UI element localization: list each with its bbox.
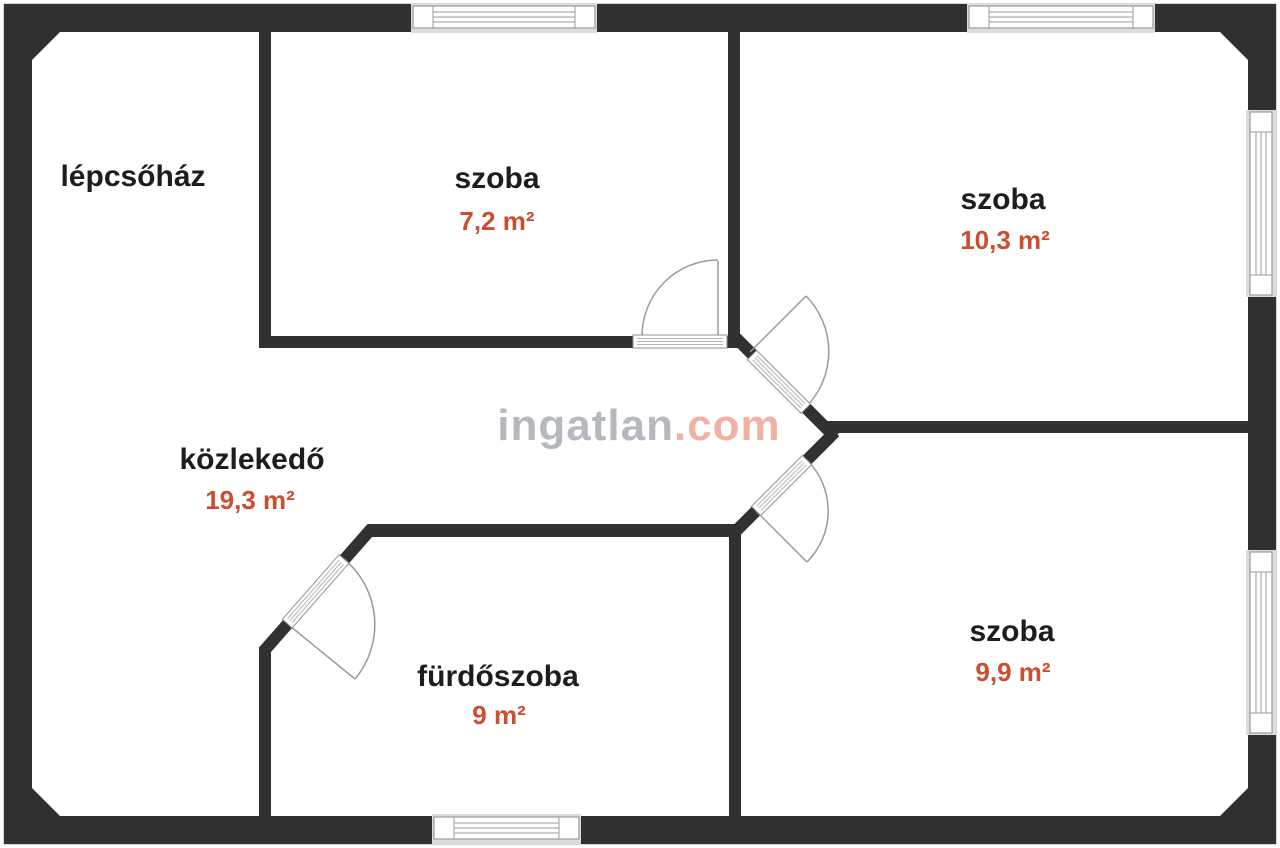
room-lepcsohaz: lépcsőház xyxy=(60,160,205,193)
room-szoba-3: szoba 9,9 m² xyxy=(969,615,1054,687)
floor-plan: ingatlan.com lépcsőház szoba 7,2 m² szob… xyxy=(0,0,1280,848)
corner-chamfer-bottom-right xyxy=(1220,788,1248,816)
room-name-szoba-3: szoba xyxy=(969,615,1054,648)
window-right-2 xyxy=(1246,550,1276,735)
watermark-ingatlan: ingatlan xyxy=(497,401,674,450)
room-furdoszoba: fürdőszoba 9 m² xyxy=(417,660,579,730)
door-furdoszoba xyxy=(282,555,374,679)
window-bottom xyxy=(432,814,581,844)
room-area-szoba-3: 9,9 m² xyxy=(975,657,1050,687)
room-name-kozlekedo: közlekedő xyxy=(179,443,324,476)
wall-szoba1-bottom xyxy=(259,336,633,348)
room-area-kozlekedo: 19,3 m² xyxy=(205,485,295,515)
room-name-szoba-1: szoba xyxy=(454,162,539,195)
wall-furdoszoba-left xyxy=(259,648,271,816)
corner-chamfer-top-right xyxy=(1220,32,1248,60)
door-szoba1 xyxy=(633,260,727,348)
room-area-szoba-1: 7,2 m² xyxy=(459,206,534,236)
window-top-1 xyxy=(411,3,597,33)
corner-chamfer-top-left xyxy=(32,32,60,60)
room-name-lepcsohaz: lépcsőház xyxy=(60,160,205,193)
watermark-com: .com xyxy=(674,401,781,450)
room-szoba-1: szoba 7,2 m² xyxy=(454,162,539,236)
wall-left xyxy=(4,4,32,844)
wall-szoba2-szoba3 xyxy=(824,421,1248,433)
doors xyxy=(282,260,828,679)
watermark-logo: ingatlan.com xyxy=(497,401,780,450)
wall-bottom xyxy=(4,816,1276,844)
room-name-furdoszoba: fürdőszoba xyxy=(417,660,579,693)
door-szoba2 xyxy=(747,296,828,413)
wall-furdoszoba-szoba3 xyxy=(729,524,741,816)
room-szoba-2: szoba 10,3 m² xyxy=(960,183,1050,255)
window-top-2 xyxy=(967,3,1155,33)
corner-chamfer-bottom-left xyxy=(32,788,60,816)
room-kozlekedo: közlekedő 19,3 m² xyxy=(179,443,324,515)
room-area-szoba-2: 10,3 m² xyxy=(960,225,1050,255)
room-name-szoba-2: szoba xyxy=(960,183,1045,216)
door-szoba3 xyxy=(751,455,828,562)
wall-lepcsohaz-szoba1 xyxy=(259,32,271,348)
wall-szoba1-szoba2 xyxy=(728,32,740,338)
room-area-furdoszoba: 9 m² xyxy=(472,700,526,730)
window-right-1 xyxy=(1246,110,1276,297)
wall-furdoszoba-top xyxy=(368,524,741,537)
